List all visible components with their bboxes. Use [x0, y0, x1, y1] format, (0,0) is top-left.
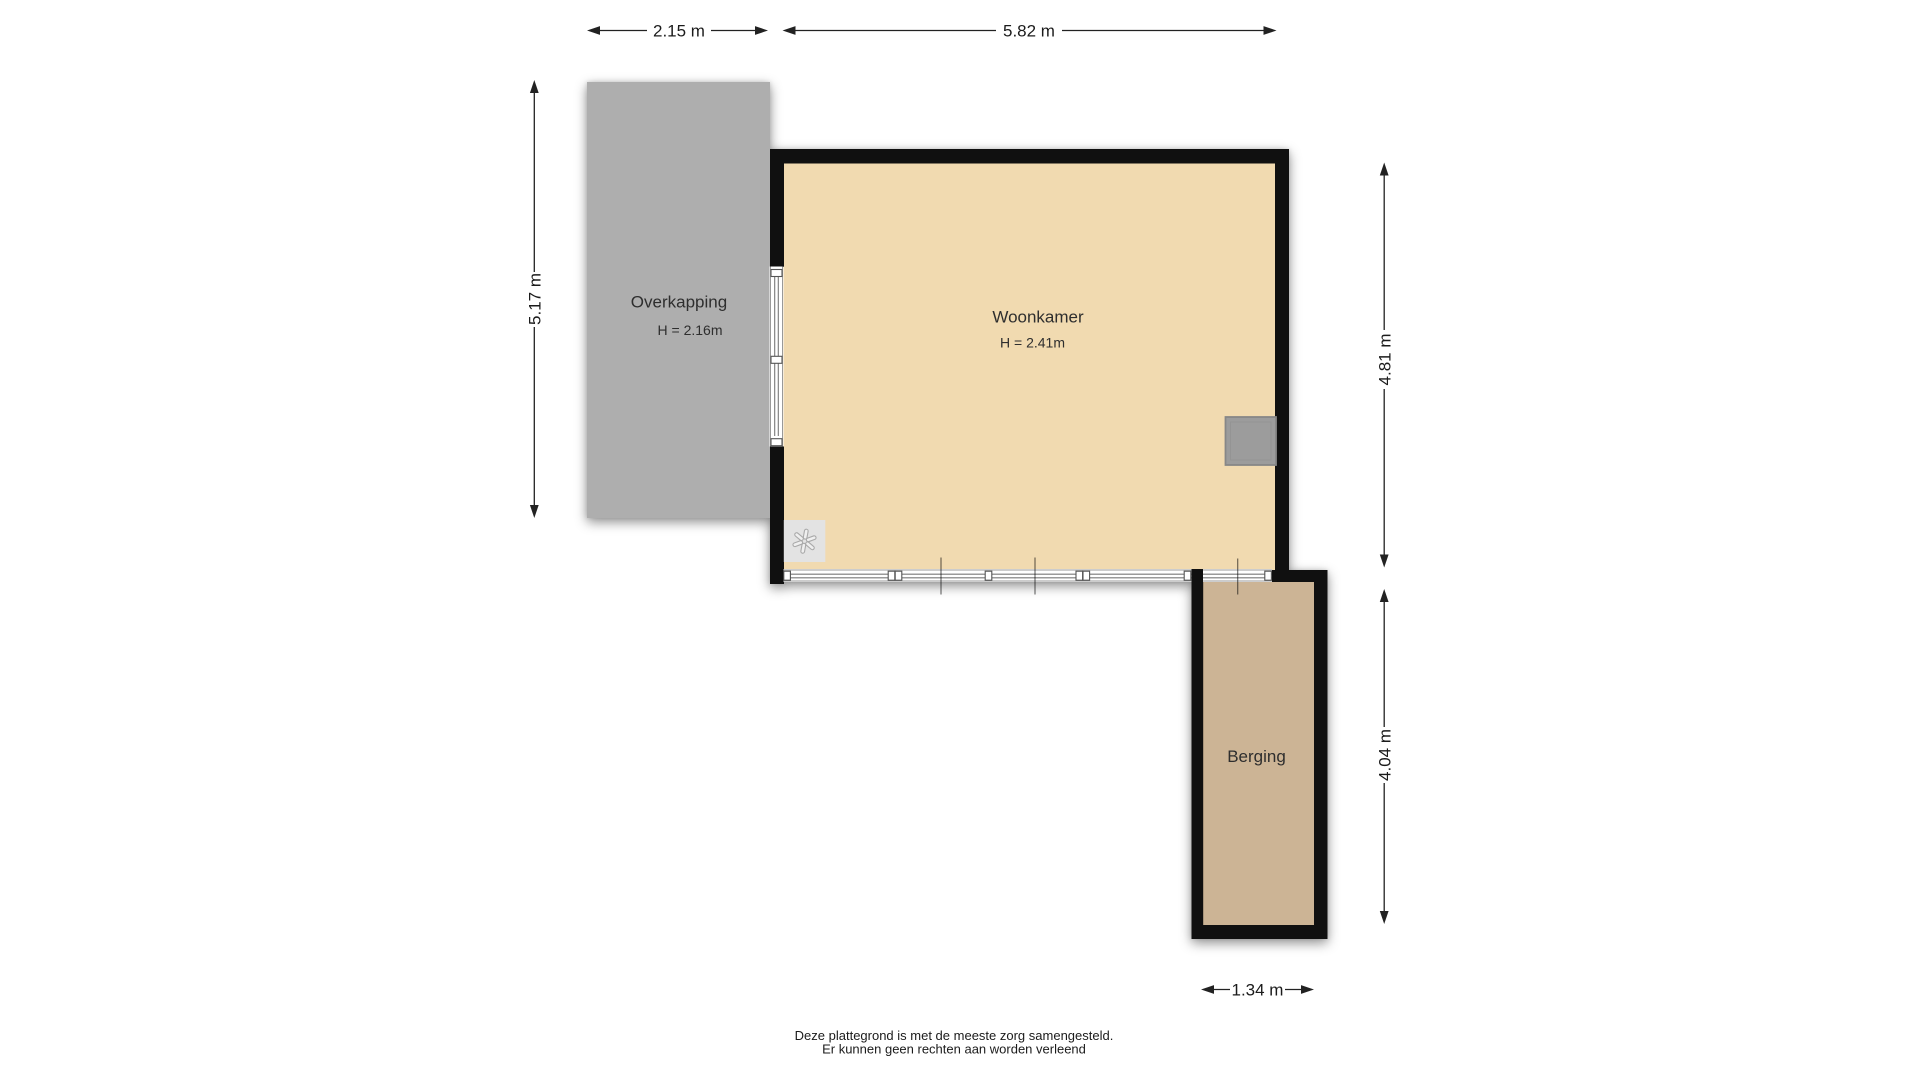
svg-text:5.82 m: 5.82 m	[1003, 21, 1055, 40]
svg-text:1.34 m: 1.34 m	[1232, 980, 1284, 999]
svg-text:5.17 m: 5.17 m	[526, 273, 545, 325]
svg-text:2.15 m: 2.15 m	[653, 21, 705, 40]
svg-text:Overkapping: Overkapping	[631, 293, 727, 312]
svg-text:4.04 m: 4.04 m	[1376, 729, 1395, 781]
svg-text:4.81 m: 4.81 m	[1376, 334, 1395, 386]
svg-text:H = 2.16m: H = 2.16m	[658, 322, 723, 338]
svg-text:Berging: Berging	[1227, 747, 1286, 766]
svg-text:Woonkamer: Woonkamer	[992, 308, 1084, 327]
svg-text:H = 2.41m: H = 2.41m	[1000, 335, 1065, 351]
svg-text:Er kunnen geen rechten aan wor: Er kunnen geen rechten aan worden verlee…	[822, 1042, 1086, 1057]
